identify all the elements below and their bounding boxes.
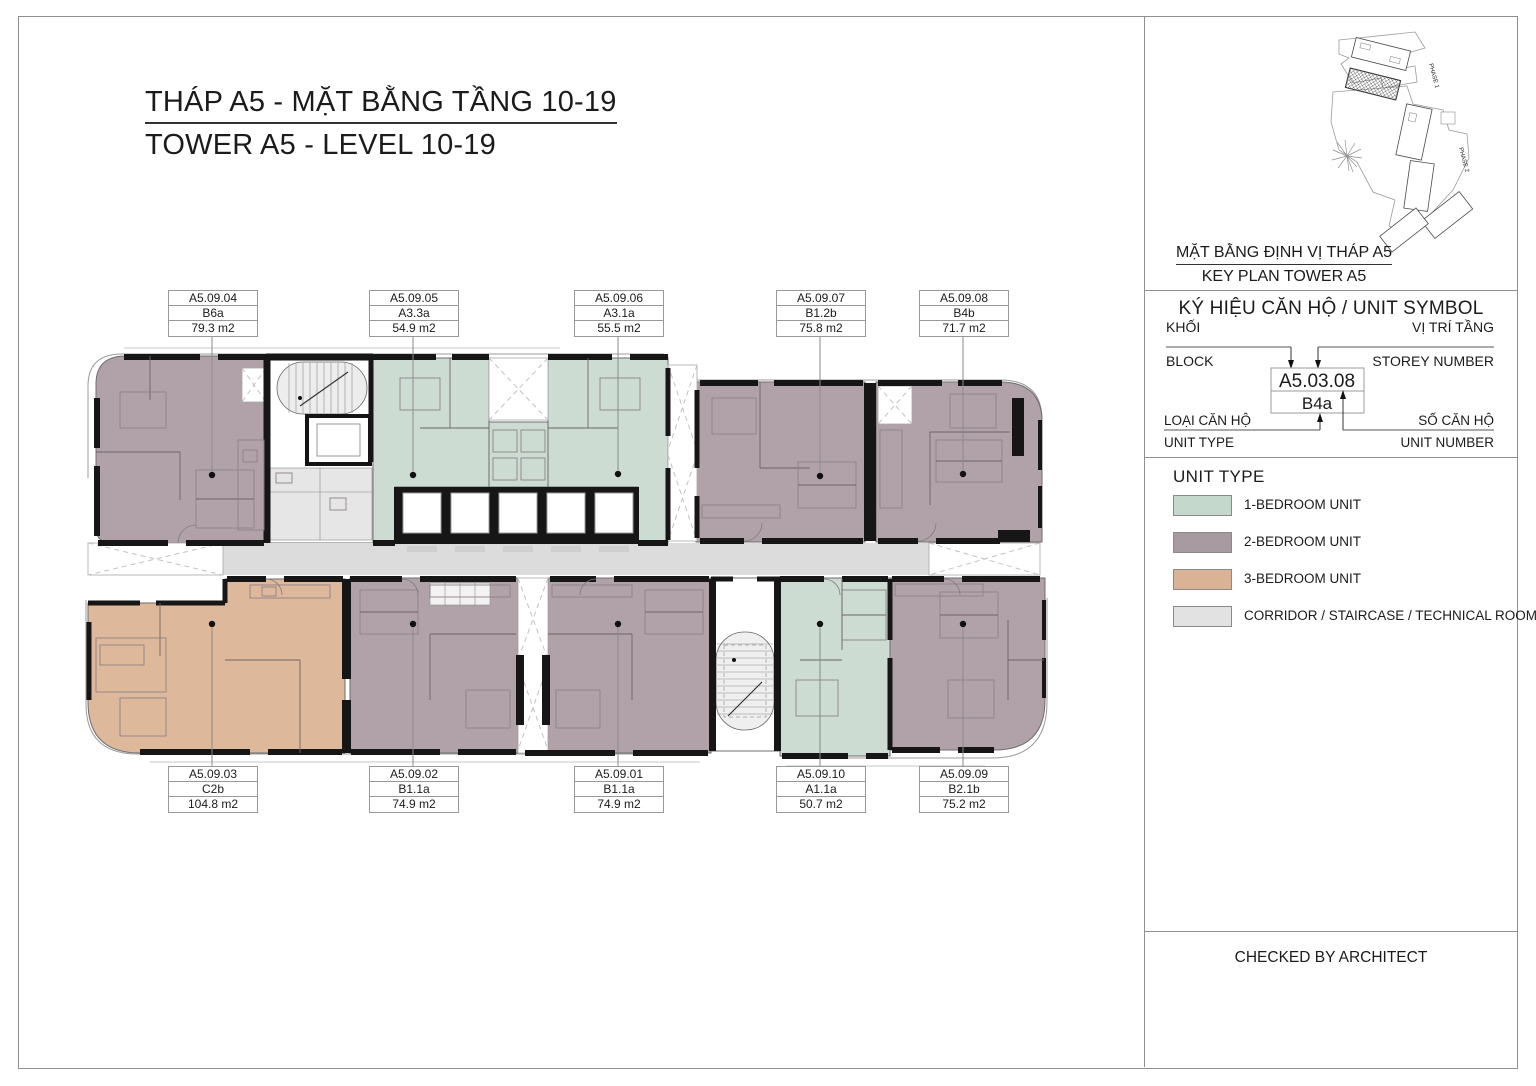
unit-region-A5-09-01 [548, 578, 711, 753]
void-corridor-left [88, 543, 223, 575]
phase1-label: PHASE 1 [1427, 63, 1440, 90]
block-label-en: BLOCK [1166, 353, 1214, 369]
unit-code: A5.09.06 [575, 291, 663, 305]
legend-label-corridor: CORRIDOR / STAIRCASE / TECHNICAL ROOM [1244, 606, 1536, 625]
unit-symbol-diagram: KHỐI BLOCK VỊ TRÍ TẦNG STOREY NUMBER A5.… [1145, 290, 1517, 457]
unit-area: 50.7 m2 [777, 796, 865, 812]
legend-swatch-1bed [1173, 495, 1232, 516]
legend-label-1bed: 1-BEDROOM UNIT [1244, 495, 1361, 514]
keyplan-building [1404, 161, 1434, 212]
unit-type: A3.1a [575, 305, 663, 320]
keyplan-building-a5-highlighted [1345, 68, 1400, 100]
void-core-corner [242, 368, 266, 402]
unit-area: 74.9 m2 [370, 796, 458, 812]
unit-type: B2.1b [920, 781, 1008, 796]
unit-area: 54.9 m2 [370, 320, 458, 336]
key-plan-map: PHASE 1 PHASE 2 [1295, 28, 1505, 268]
unit-code: A5.09.03 [169, 767, 257, 781]
unit-region-A5-09-04 [96, 356, 266, 543]
unit-label-A5-09-08: A5.09.08 B4b 71.7 m2 [919, 290, 1009, 337]
void-corridor-right [929, 543, 1040, 575]
unit-area: 75.2 m2 [920, 796, 1008, 812]
unit-code: A5.09.07 [777, 291, 865, 305]
key-plan-caption: MẶT BẰNG ĐỊNH VỊ THÁP A5 KEY PLAN TOWER … [1159, 244, 1409, 286]
unit-label-A5-09-07: A5.09.07 B1.2b 75.8 m2 [776, 290, 866, 337]
unit-area: 75.8 m2 [777, 320, 865, 336]
legend-swatch-3bed [1173, 569, 1232, 590]
unit-code: A5.09.09 [920, 767, 1008, 781]
unit-label-A5-09-01: A5.09.01 B1.1a 74.9 m2 [574, 766, 664, 813]
unit-label-A5-09-02: A5.09.02 B1.1a 74.9 m2 [369, 766, 459, 813]
storey-label-en: STOREY NUMBER [1372, 353, 1494, 369]
unit-label-A5-09-06: A5.09.06 A3.1a 55.5 m2 [574, 290, 664, 337]
block-label-vi: KHỐI [1166, 318, 1200, 335]
unit-area: 71.7 m2 [920, 320, 1008, 336]
example-unit-code: A5.03.08 [1279, 371, 1355, 392]
floor-plan-sheet: THÁP A5 - MẶT BẰNG TẦNG 10-19 TOWER A5 -… [0, 0, 1536, 1086]
unit-area: 104.8 m2 [169, 796, 257, 812]
unit-region-A5-09-10 [780, 578, 890, 756]
unit-region-A5-09-09 [890, 578, 1045, 750]
unit-area: 55.5 m2 [575, 320, 663, 336]
keyplan-building [1351, 38, 1410, 71]
unit-type-heading: UNIT TYPE [1173, 467, 1265, 487]
storey-label-vi: VỊ TRÍ TẦNG [1412, 319, 1494, 335]
bath-pods-region [489, 422, 548, 487]
unit-label-A5-09-04: A5.09.04 B6a 79.3 m2 [168, 290, 258, 337]
unit-code: A5.09.10 [777, 767, 865, 781]
elevator-bank [394, 487, 639, 552]
unit-type: B1.1a [575, 781, 663, 796]
unit-label-A5-09-03: A5.09.03 C2b 104.8 m2 [168, 766, 258, 813]
unit-label-A5-09-05: A5.09.05 A3.3a 54.9 m2 [369, 290, 459, 337]
void-strip-mid-top [668, 365, 697, 541]
unit-type: B4b [920, 305, 1008, 320]
footer-section: CHECKED BY ARCHITECT [1145, 931, 1517, 1067]
unit-type: A1.1a [777, 781, 865, 796]
legend-swatch-2bed [1173, 532, 1232, 553]
unit-area: 79.3 m2 [169, 320, 257, 336]
unit-type: A3.3a [370, 305, 458, 320]
unit-code: A5.09.08 [920, 291, 1008, 305]
keyplan-annex [1441, 112, 1455, 124]
unit-code: A5.09.04 [169, 291, 257, 305]
checked-by-architect: CHECKED BY ARCHITECT [1145, 949, 1517, 967]
unit-code: A5.09.05 [370, 291, 458, 305]
arrow-up-unit-type [1317, 413, 1323, 422]
unit-type: B1.1a [370, 781, 458, 796]
void-b4b-corner [878, 386, 912, 424]
unit-type-label-vi: LOẠI CĂN HỘ [1164, 413, 1251, 428]
keyplan-building [1396, 104, 1432, 160]
key-plan-section: PHASE 1 PHASE 2 MẶT BẰNG ĐỊNH VỊ THÁP A5… [1145, 16, 1517, 291]
unit-number-label-vi: SỐ CĂN HỘ [1418, 413, 1494, 428]
unit-number-label-en: UNIT NUMBER [1400, 435, 1494, 450]
unit-label-A5-09-10: A5.09.10 A1.1a 50.7 m2 [776, 766, 866, 813]
legend-label-2bed: 2-BEDROOM UNIT [1244, 532, 1361, 551]
unit-code: A5.09.01 [575, 767, 663, 781]
unit-area: 74.9 m2 [575, 796, 663, 812]
tree-symbol [1332, 140, 1362, 172]
unit-type-section: UNIT TYPE 1-BEDROOM UNIT 2-BEDROOM UNIT … [1145, 457, 1517, 932]
void-notch-top-center [489, 358, 548, 420]
unit-symbol-section: KÝ HIỆU CĂN HỘ / UNIT SYMBOL KHỐI BLOCK … [1145, 290, 1517, 458]
legend-swatch-corridor [1173, 606, 1232, 627]
unit-type: B1.2b [777, 305, 865, 320]
unit-label-A5-09-09: A5.09.09 B2.1b 75.2 m2 [919, 766, 1009, 813]
unit-code: A5.09.02 [370, 767, 458, 781]
unit-type: B6a [169, 305, 257, 320]
legend-label-3bed: 3-BEDROOM UNIT [1244, 569, 1361, 588]
stair-core-top [270, 362, 372, 540]
key-plan-caption-en: KEY PLAN TOWER A5 [1159, 268, 1409, 286]
sidebar: PHASE 1 PHASE 2 MẶT BẰNG ĐỊNH VỊ THÁP A5… [1144, 16, 1517, 1067]
unit-type: C2b [169, 781, 257, 796]
example-unit-type: B4a [1302, 394, 1333, 413]
key-plan-caption-vi: MẶT BẰNG ĐỊNH VỊ THÁP A5 [1176, 244, 1392, 265]
unit-type-label-en: UNIT TYPE [1164, 435, 1234, 450]
